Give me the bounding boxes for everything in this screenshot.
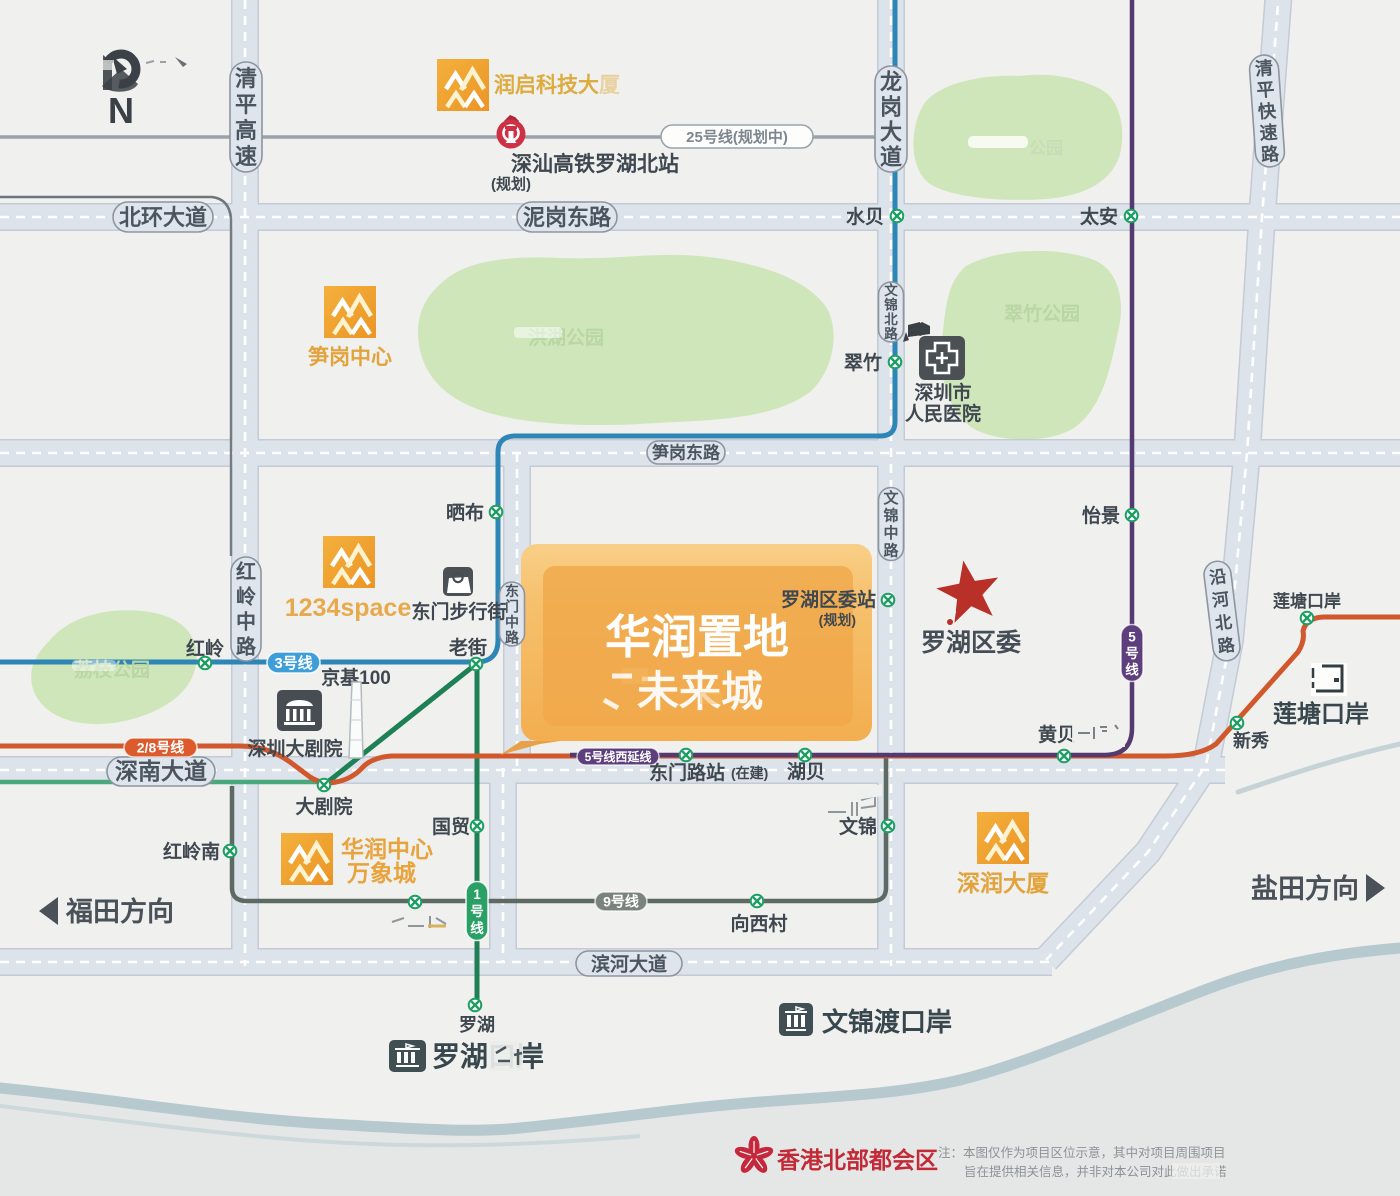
svg-text:人民医院: 人民医院 (905, 402, 981, 425)
svg-text:莲塘口岸: 莲塘口岸 (1273, 591, 1341, 611)
svg-text:太安: 太安 (1080, 205, 1118, 228)
svg-text:红岭: 红岭 (186, 637, 224, 660)
svg-text:华润置地: 华润置地 (605, 611, 789, 663)
svg-text:深润大厦: 深润大厦 (957, 870, 1049, 896)
svg-text:2/8号线: 2/8号线 (137, 740, 184, 756)
svg-text:万象城: 万象城 (347, 860, 416, 886)
svg-text:向西村: 向西村 (730, 912, 787, 935)
svg-text:深圳市: 深圳市 (914, 381, 971, 404)
svg-text:注：本图仅作为项目区位示意，其中对项目周围项目: 注：本图仅作为项目区位示意，其中对项目周围项目 (938, 1145, 1226, 1160)
svg-text:老街: 老街 (449, 636, 487, 659)
svg-text:(在建): (在建) (731, 765, 768, 781)
svg-text:清平高速: 清平高速 (235, 66, 257, 169)
svg-text:未来城: 未来城 (637, 668, 763, 715)
svg-text:文锦渡口岸: 文锦渡口岸 (822, 1007, 952, 1037)
svg-text:黄贝: 黄贝 (1038, 723, 1076, 746)
svg-text:国贸: 国贸 (432, 815, 470, 838)
svg-text:东门路站: 东门路站 (649, 761, 725, 784)
svg-text:北环大道: 北环大道 (119, 205, 207, 230)
svg-text:盐田方向: 盐田方向 (1251, 873, 1359, 904)
svg-text:(规划): (规划) (819, 612, 856, 628)
svg-text:9号线: 9号线 (603, 894, 639, 910)
svg-text:笋岗东路: 笋岗东路 (652, 443, 721, 463)
svg-text:翠竹: 翠竹 (844, 351, 882, 374)
svg-text:罗湖口岸: 罗湖口岸 (432, 1041, 544, 1072)
svg-text:怡景: 怡景 (1082, 504, 1120, 527)
svg-text:水贝: 水贝 (846, 206, 884, 228)
svg-text:泥岗东路: 泥岗东路 (523, 205, 612, 230)
svg-text:(规划): (规划) (491, 175, 531, 193)
svg-text:3号线: 3号线 (274, 654, 312, 672)
svg-text:文锦北路: 文锦北路 (884, 282, 898, 342)
svg-text:滨河大道: 滨河大道 (591, 952, 667, 975)
svg-text:深汕高铁罗湖北站: 深汕高铁罗湖北站 (511, 152, 679, 176)
svg-text:笋岗中心: 笋岗中心 (308, 345, 392, 369)
svg-text:红岭南: 红岭南 (163, 840, 220, 863)
svg-text:晒布: 晒布 (446, 501, 484, 524)
svg-text:东门中路: 东门中路 (505, 583, 520, 646)
svg-text:东门步行街: 东门步行街 (411, 600, 506, 623)
svg-text:深南大道: 深南大道 (115, 758, 207, 784)
svg-text:文锦: 文锦 (839, 815, 877, 838)
svg-text:龙岗大道: 龙岗大道 (880, 69, 902, 169)
svg-text:公园: 公园 (1029, 139, 1063, 158)
svg-text:罗湖区委: 罗湖区委 (921, 629, 1021, 657)
svg-text:华润中心: 华润中心 (341, 836, 433, 862)
svg-text:25号线(规划中): 25号线(规划中) (686, 128, 788, 146)
svg-text:大剧院: 大剧院 (295, 795, 352, 818)
svg-text:香港北部都会区: 香港北部都会区 (777, 1147, 938, 1173)
svg-text:罗湖区委站: 罗湖区委站 (781, 588, 876, 611)
svg-text:福田方向: 福田方向 (65, 896, 174, 927)
svg-text:深圳大剧院: 深圳大剧院 (247, 737, 342, 760)
svg-text:新秀: 新秀 (1233, 730, 1269, 751)
svg-text:5号线西延线: 5号线西延线 (585, 749, 652, 764)
svg-text:1234space: 1234space (285, 594, 412, 622)
svg-text:文锦中路: 文锦中路 (883, 489, 899, 559)
svg-text:湖贝: 湖贝 (787, 761, 825, 783)
svg-text:N: N (108, 90, 134, 131)
svg-text:翠竹公园: 翠竹公园 (1004, 302, 1080, 325)
svg-text:罗湖: 罗湖 (459, 1015, 495, 1035)
svg-text:莲塘口岸: 莲塘口岸 (1273, 700, 1369, 728)
